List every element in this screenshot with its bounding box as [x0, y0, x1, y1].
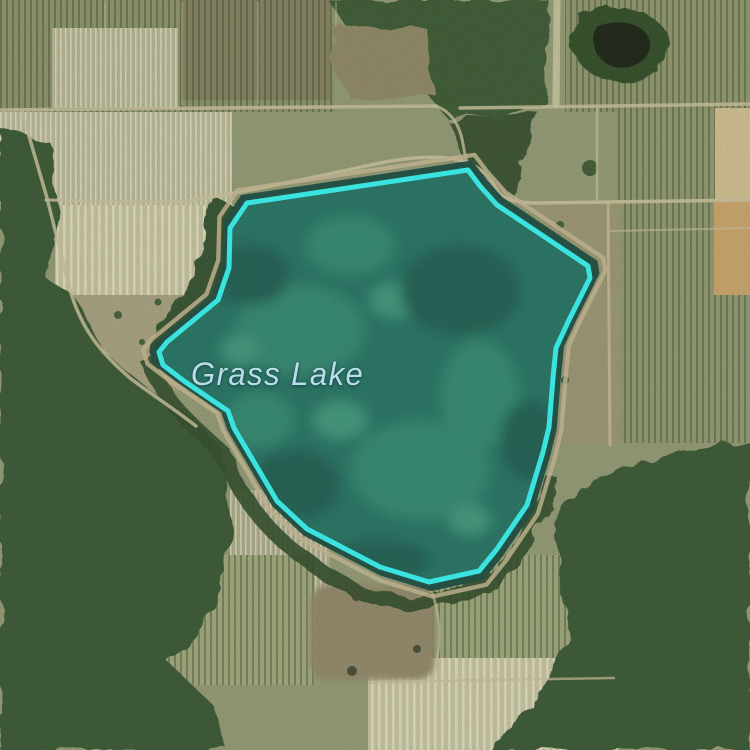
map-canvas[interactable]: Grass Lake — [0, 0, 750, 750]
satellite-basemap — [0, 0, 750, 750]
